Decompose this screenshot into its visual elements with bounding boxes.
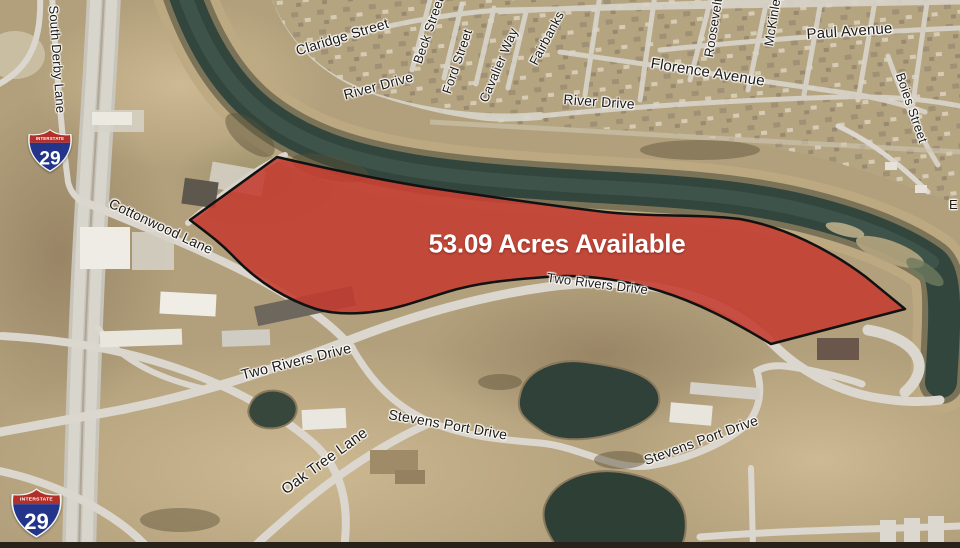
street-label-edge-street-e: E — [949, 198, 958, 211]
shield-banner-text: INTERSTATE — [20, 497, 53, 503]
parcel-acreage-label: 53.09 Acres Available — [429, 229, 686, 260]
pond — [248, 391, 296, 429]
shield-route-number: 29 — [39, 148, 60, 169]
photo-edge-strip — [0, 542, 960, 548]
aerial-property-map: South Derby LaneClaridge StreetRiver Dri… — [0, 0, 960, 548]
shield-banner-text: INTERSTATE — [36, 136, 65, 141]
interstate-29-shield-north: INTERSTATE 29 — [27, 128, 73, 173]
aerial-basemap — [0, 0, 960, 548]
shield-route-number: 29 — [24, 509, 49, 534]
interstate-29-shield-south: INTERSTATE 29 — [10, 487, 63, 539]
